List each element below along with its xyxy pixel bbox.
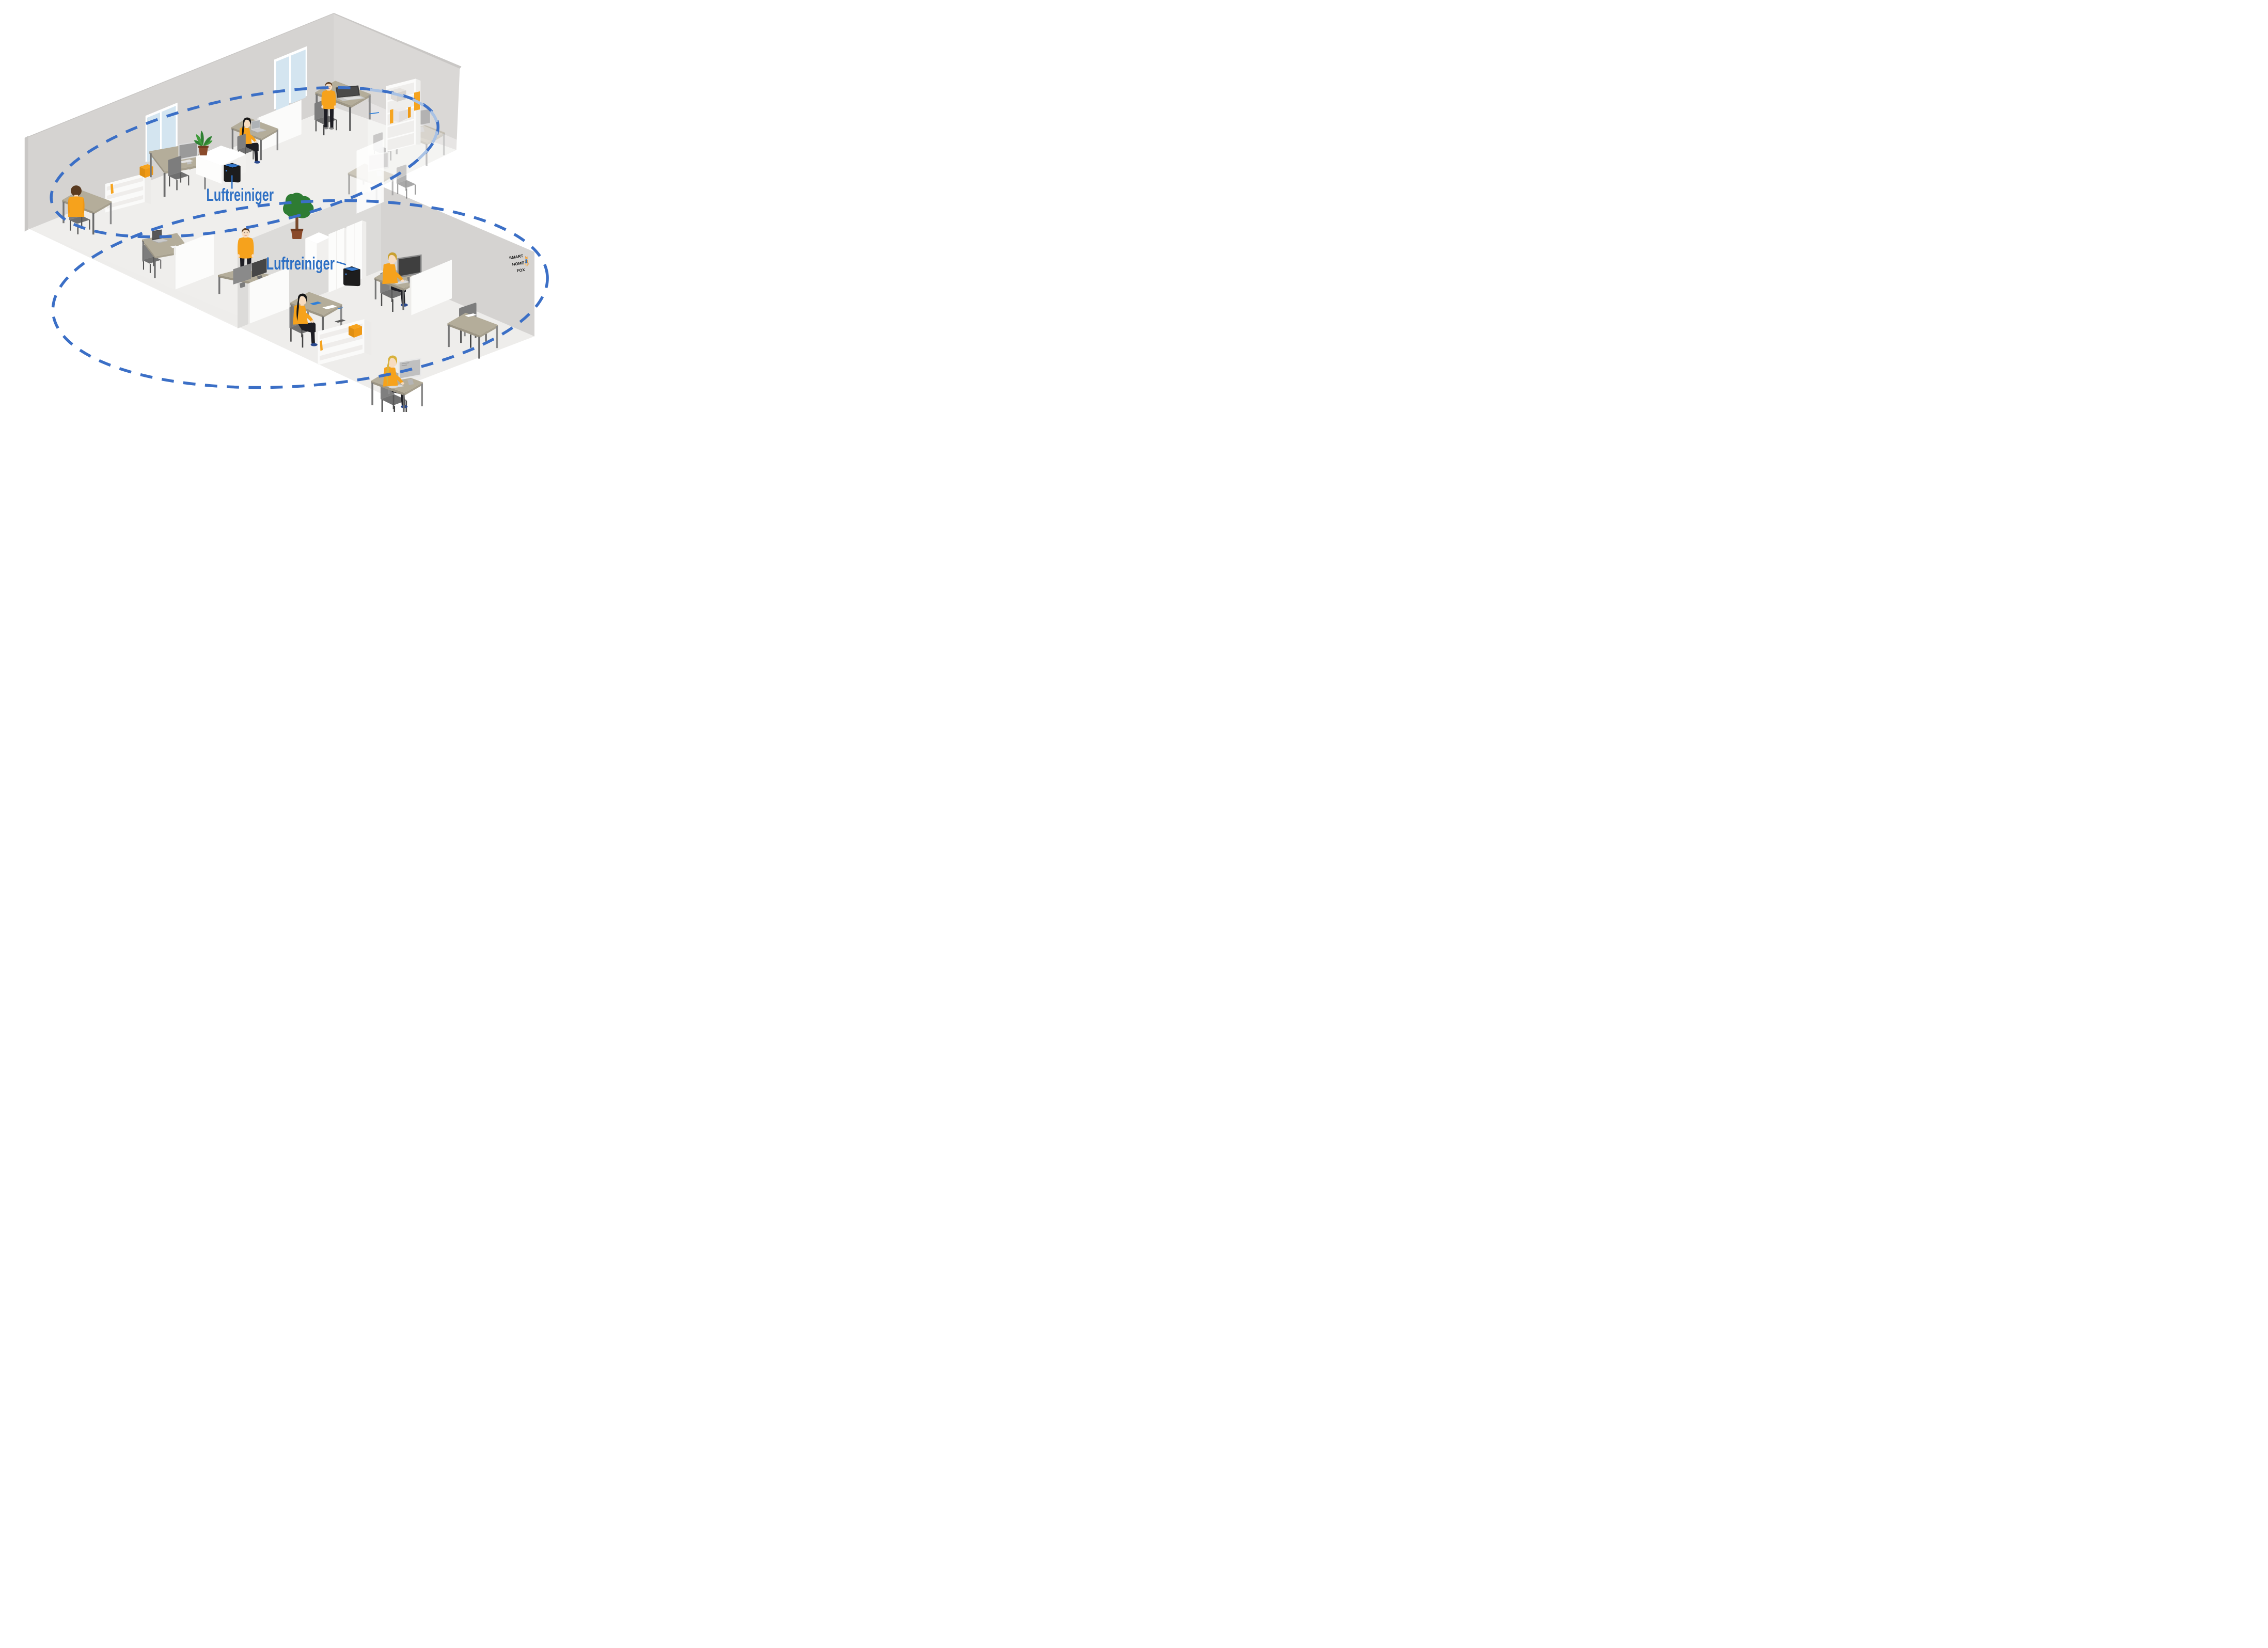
svg-text:Luftreiniger: Luftreiniger: [266, 254, 335, 274]
svg-text:Luftreiniger: Luftreiniger: [207, 185, 274, 205]
